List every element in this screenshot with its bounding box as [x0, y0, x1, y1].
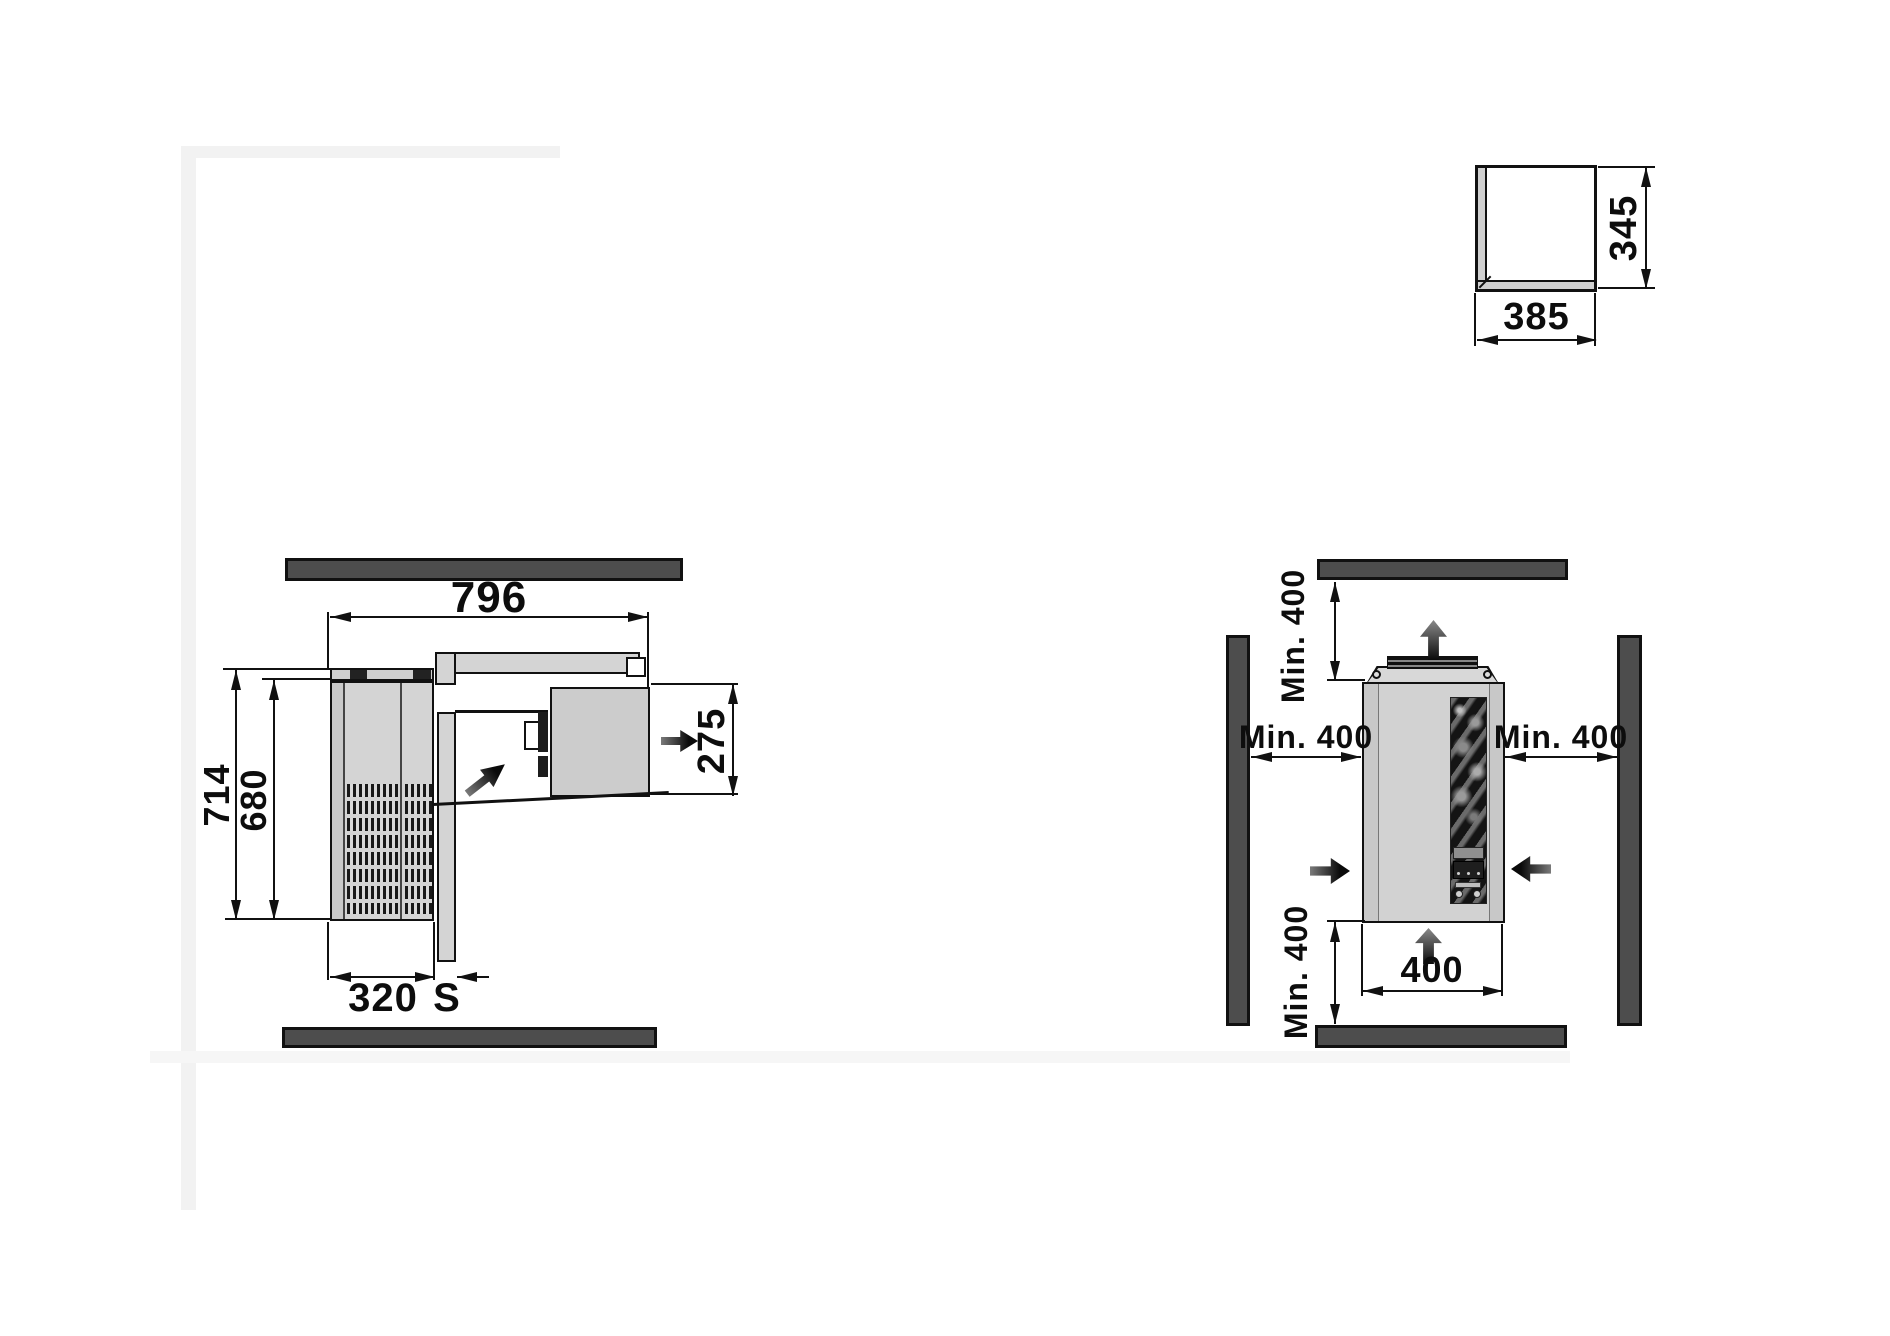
component-detail: [1456, 871, 1461, 876]
dim-label-condenser-depth: 320: [332, 978, 434, 1018]
dim-label-clearance-right: Min. 400: [1500, 720, 1622, 754]
duct-top-line: [455, 710, 548, 713]
unit-divider-line: [400, 683, 402, 919]
extension-line: [651, 683, 738, 685]
evaporator-box-plan: [550, 687, 650, 797]
dim-arrow: [1483, 986, 1503, 996]
condenser-grille-right: [405, 784, 432, 914]
front-wall-bottom: [1315, 1025, 1567, 1048]
ceiling-panel-bar: [435, 652, 640, 674]
dim-arrow: [1330, 661, 1340, 681]
dim-arrow: [269, 900, 279, 920]
airflow-side-in-icon: [1511, 856, 1551, 882]
dim-label-cutout-width: 385: [1477, 298, 1596, 336]
front-wall-left: [1226, 635, 1250, 1026]
front-wall-top: [1317, 559, 1568, 580]
condenser-grille-left: [347, 784, 398, 914]
unit-top-cap: [330, 668, 434, 681]
unit-side-column: [332, 683, 345, 919]
front-wall-right: [1617, 635, 1642, 1026]
cutout-chamfer-bottom: [1478, 280, 1594, 289]
scan-edge-top: [196, 146, 560, 158]
dim-arrow: [1330, 1004, 1340, 1024]
dim-label-cutout-height: 345: [1605, 173, 1643, 283]
dim-arrow: [1330, 922, 1340, 942]
dim-arrow: [1363, 986, 1383, 996]
dim-label-clearance-left: Min. 400: [1246, 720, 1366, 754]
cutout-chamfer-left: [1478, 168, 1487, 289]
component-detail: [1453, 861, 1484, 879]
dim-arrow: [231, 670, 241, 690]
component-detail: [1466, 871, 1471, 876]
installation-drawing: 796 714: [0, 0, 1890, 1336]
component-detail: [1476, 871, 1481, 876]
bracket-screw: [1372, 670, 1381, 679]
dim-arrow: [1330, 582, 1340, 602]
dim-label-unit-width: 400: [1392, 952, 1472, 988]
dim-label-clearance-bottom: Min. 400: [1279, 897, 1313, 1047]
plan-wall-bottom: [282, 1027, 657, 1048]
wall-panel-strip: [437, 712, 456, 962]
dim-arrow: [1577, 335, 1597, 345]
fan-element: [538, 712, 548, 752]
bracket-screw: [1483, 670, 1492, 679]
dim-label-evaporator-depth: 275: [693, 686, 731, 796]
dim-arrow: [1478, 335, 1498, 345]
scan-edge-bottom: [150, 1051, 1570, 1063]
dim-label-width-total: 796: [330, 578, 648, 618]
dim-label-clearance-top: Min. 400: [1276, 561, 1310, 711]
dim-label-depth-inner: 680: [236, 740, 272, 860]
airflow-intake-diagonal-icon: [460, 756, 511, 803]
dim-arrow: [231, 900, 241, 920]
extension-line: [1474, 293, 1476, 346]
airflow-side-in-icon: [1310, 858, 1350, 884]
extension-line: [327, 612, 329, 670]
dim-arrow: [269, 680, 279, 700]
cutout-square: [1475, 165, 1597, 292]
component-detail: [1473, 890, 1481, 898]
mounting-bracket: [1368, 668, 1497, 682]
dim-label-wall-thickness: S: [429, 978, 465, 1018]
component-detail: [1455, 882, 1481, 888]
extension-line: [327, 922, 329, 980]
cap-fastener: [413, 670, 431, 679]
airflow-up-icon: [1420, 620, 1447, 660]
cap-fastener: [350, 670, 367, 679]
panel-lock-fitting: [626, 657, 646, 677]
panel-joint-patch: [437, 656, 454, 672]
component-detail: [1455, 890, 1463, 898]
component-detail: [1453, 847, 1484, 859]
dim-label-depth-total: 714: [199, 735, 235, 855]
condenser-coil-photo: [1450, 697, 1487, 904]
fan-element: [538, 756, 548, 777]
